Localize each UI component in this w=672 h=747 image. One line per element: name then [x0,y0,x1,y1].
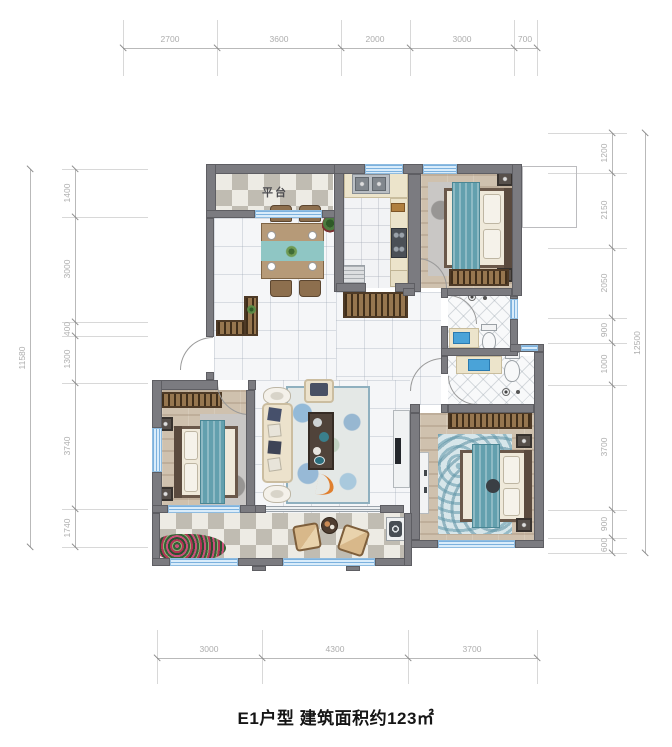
balcony-chair [292,522,322,552]
dining-chair [270,280,292,297]
extension-line [548,553,627,554]
wall [403,164,423,174]
dim-label-top: 3600 [270,34,289,44]
bedroom2-headboard [174,426,182,498]
window [283,558,375,566]
wall [240,505,256,513]
plate [267,231,276,240]
window [521,345,538,351]
bedroom3-bed-knob [486,479,500,493]
sofa-pillow [267,440,281,454]
wall [334,164,365,174]
window [152,428,162,472]
dim-label-top: 3000 [453,34,472,44]
wall [441,288,448,298]
bathroom2-toilet-bowl [504,360,520,382]
dim-label-left-total: 11580 [17,346,27,369]
wall [410,540,438,548]
extension-line [548,538,627,539]
ac-platform-outline [522,166,577,228]
wall [346,566,360,571]
dim-label-right-total: 12500 [632,331,642,355]
dim-label-right: 2150 [599,201,609,220]
dimension-line-left-outer [30,169,31,547]
dim-label-left: 400 [62,322,72,336]
wall [534,352,544,548]
floorplan-canvas: 2700 3600 2000 3000 700 3000 4300 3700 1… [0,0,672,747]
wall [410,404,420,413]
dim-label-right: 900 [599,517,609,531]
ceiling-light-icon [516,390,520,394]
sideboard-cabinet [343,292,408,318]
bathroom1-toilet-tank [481,324,497,331]
extension-line [548,510,627,511]
dim-label-right: 2050 [599,274,609,293]
wall [206,164,343,174]
extension-line [548,133,627,134]
bedroom3-pillow [503,456,520,484]
wall [512,164,522,296]
dim-label-bottom: 3700 [463,644,482,654]
wall [252,566,266,571]
wall [441,348,518,356]
nightstand [497,172,513,186]
dim-label-right: 900 [599,323,609,337]
bedroom2-pillow [184,463,198,492]
coffee-table-decor [313,447,321,455]
bedroom1-pillow [483,194,501,224]
wall [334,164,344,292]
wall [206,218,214,337]
window [255,210,322,218]
entry-door-arc [180,337,213,370]
cutting-board [391,203,405,212]
dim-label-right: 1000 [599,355,609,374]
wall [246,390,255,513]
bedroom3-pillow [503,488,520,516]
coffee-table-decor [314,456,325,465]
dim-label-right: 3700 [599,438,609,457]
wall [152,380,162,428]
coffee-table-decor [313,418,322,427]
dim-label-right: 1200 [599,144,609,163]
dim-label-top: 700 [518,34,532,44]
dimension-line-right-outer [645,133,646,553]
coffee-table-decor [319,432,329,442]
shoe-cabinet [244,296,258,336]
platform-label: 平台 [262,184,288,200]
wall [248,380,256,390]
dim-label-left: 3740 [62,437,72,456]
wall [206,372,214,380]
extension-line [548,248,627,249]
window [438,540,515,548]
nightstand [516,434,532,448]
wall [380,505,404,513]
desk-knob [424,487,427,493]
sink-basin [355,177,369,191]
wall [404,513,412,566]
exhaust-fan-icon [502,388,510,396]
wall [446,288,512,296]
plate [308,231,317,240]
bedroom2-wardrobe [160,392,222,408]
wall [408,174,421,292]
plate [308,262,317,271]
window [423,164,457,174]
wall [255,505,266,513]
dim-label-left: 1740 [62,519,72,538]
wall [403,288,415,296]
wall [152,505,168,513]
window [510,299,518,319]
dim-label-left: 3000 [62,260,72,279]
bedroom3-wardrobe [448,412,532,429]
dim-label-top: 2700 [161,34,180,44]
bedroom1-pillow [483,229,501,259]
sofa-pillow [267,423,281,437]
window [168,505,240,513]
sofa-pillow [267,407,282,422]
desk-knob [424,470,427,476]
dim-label-bottom: 3000 [200,644,219,654]
bedroom2-pillow [184,431,198,460]
window [365,164,403,174]
wall [152,558,170,566]
bedroom3-headboard [524,450,532,522]
extension-line [548,385,627,386]
dim-label-left: 1300 [62,350,72,369]
nightstand [516,518,532,532]
dim-label-left: 1400 [62,184,72,203]
bedroom1-headboard [504,188,512,268]
bathroom2-basin [468,359,490,371]
stove [391,228,407,258]
bedroom1-blanket [452,182,480,274]
dim-label-top: 2000 [366,34,385,44]
window [170,558,238,566]
tv [395,438,401,464]
bathroom1-basin [453,332,470,344]
dining-chair [299,280,321,297]
side-table [263,485,291,503]
dimension-line-bottom [157,658,537,659]
ceiling-light-icon [483,296,487,300]
sofa-pillow [267,457,282,472]
wall [238,558,283,566]
armchair-cushion [310,383,328,396]
dim-label-right: 600 [599,538,609,552]
dim-label-bottom: 4300 [326,644,345,654]
balcony-table [321,517,338,534]
extension-line [548,318,627,319]
bedroom1-wardrobe [449,269,509,286]
washing-machine-drum [389,521,402,537]
wall [515,540,544,548]
dimension-line-left-inner [75,169,76,547]
page-title: E1户型 建筑面积约123㎡ [0,704,672,729]
foyer-plant [247,305,256,314]
wall [336,283,366,292]
wall [448,404,534,413]
balcony-flowers [156,534,226,561]
plate [267,262,276,271]
wall [206,210,255,218]
centerpiece-plant [285,245,298,258]
wall [441,404,448,413]
extension-line [548,343,627,344]
wall [441,356,448,374]
bedroom2-blanket [200,420,225,504]
balcony-slider-door [266,506,380,512]
dimension-line-top [123,48,537,49]
sink-basin [372,177,386,191]
